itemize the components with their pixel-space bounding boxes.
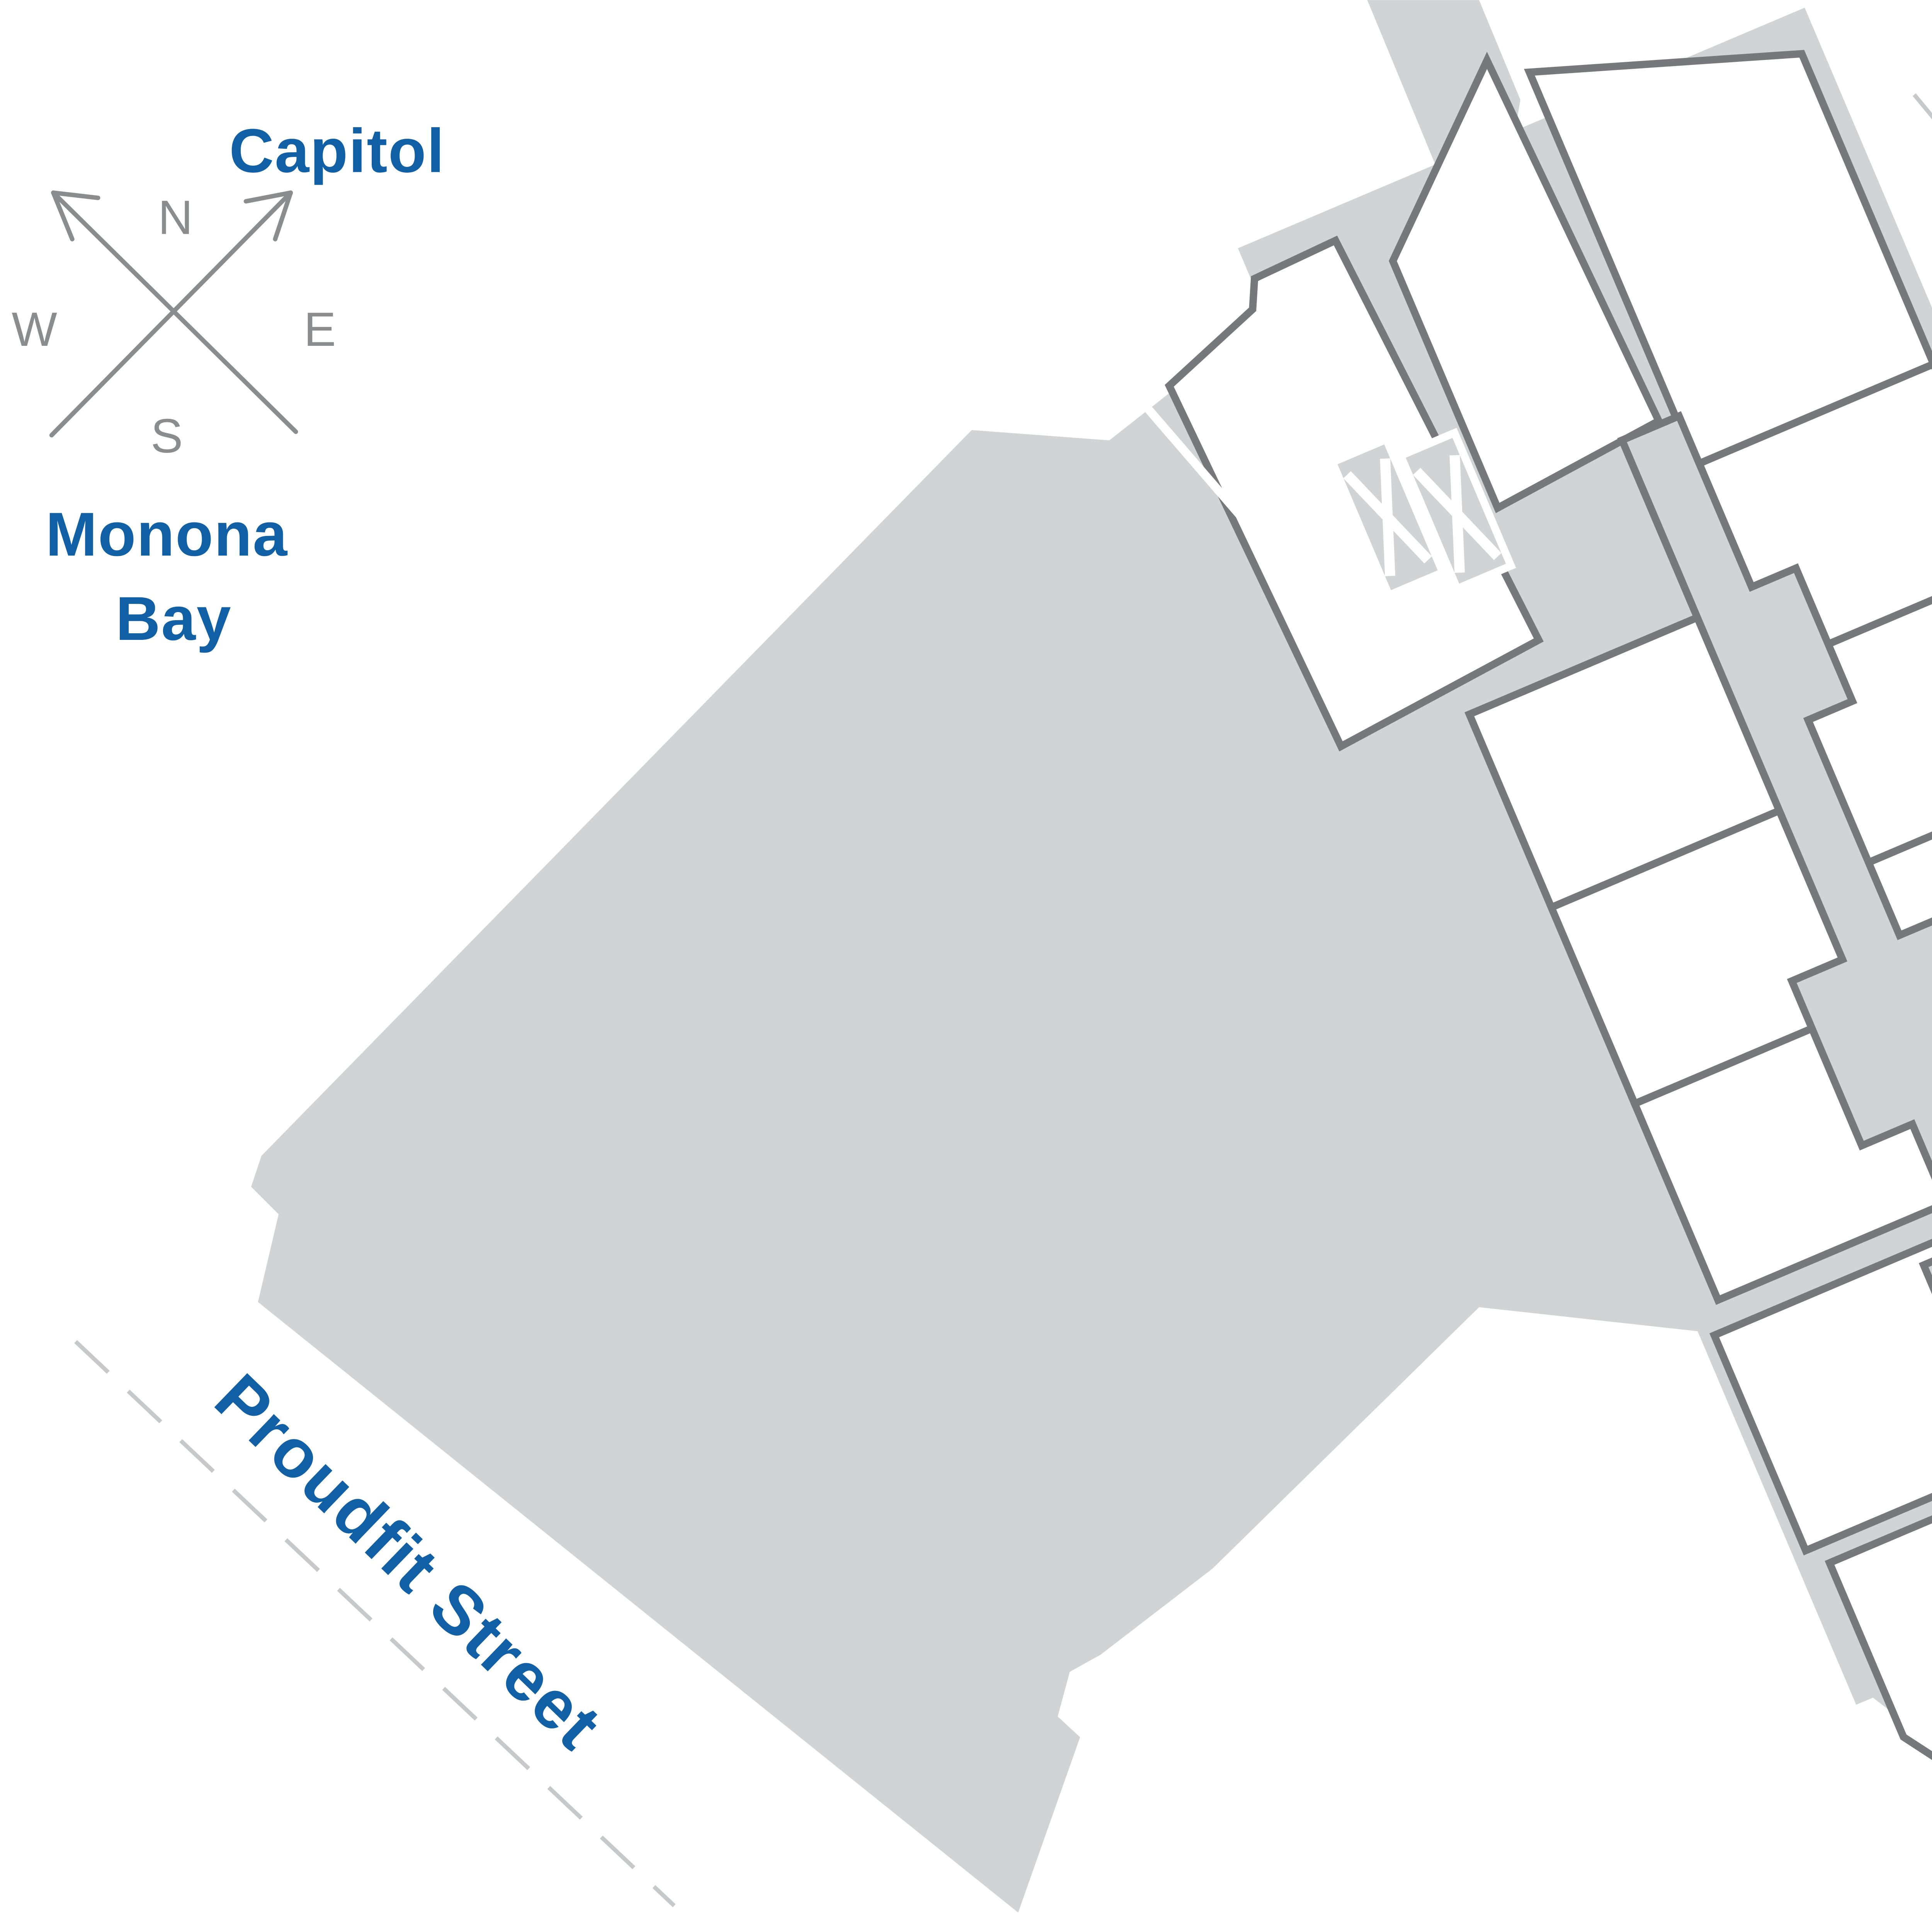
- site-map: N W E S Capitol Monona Bay SW Bike Path …: [0, 0, 1932, 1932]
- monona-bay-label-line2: Bay: [116, 584, 232, 653]
- compass-rose: N W E S: [12, 191, 336, 463]
- compass-w: W: [12, 303, 57, 356]
- monona-bay-label-line1: Monona: [46, 500, 288, 569]
- compass-s: S: [151, 409, 183, 463]
- capitol-label: Capitol: [229, 116, 445, 185]
- compass-n: N: [158, 191, 193, 245]
- compass-e: E: [304, 303, 336, 356]
